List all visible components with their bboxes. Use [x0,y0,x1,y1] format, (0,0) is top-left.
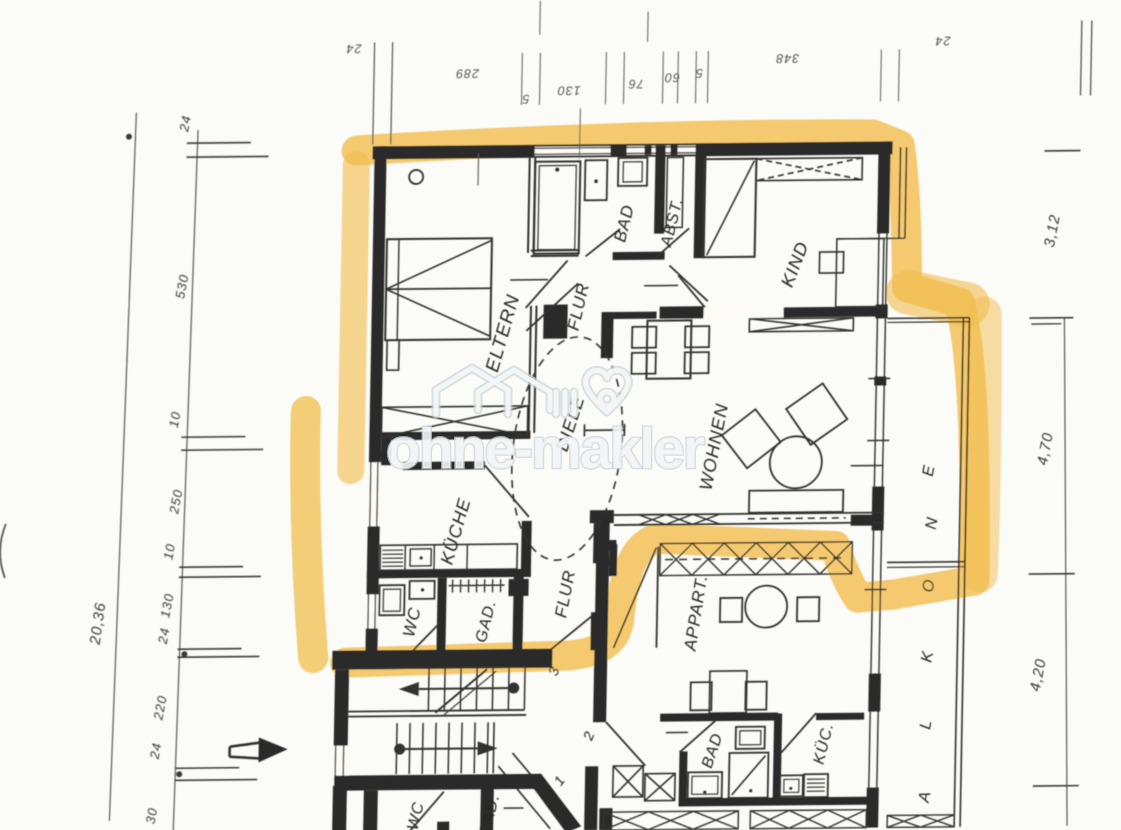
svg-text:5: 5 [695,66,703,80]
svg-text:10: 10 [160,542,178,561]
svg-text:289: 289 [455,66,480,80]
svg-text:130: 130 [557,83,581,97]
svg-text:76: 76 [628,77,644,91]
svg-text:60: 60 [664,70,680,84]
svg-text:24: 24 [345,41,362,55]
svg-text:30: 30 [143,806,161,825]
svg-text:O: O [920,578,939,594]
svg-text:10: 10 [166,410,184,429]
svg-text:24: 24 [935,34,952,48]
svg-text:348: 348 [775,51,799,65]
svg-text:5: 5 [521,92,529,106]
svg-text:ohne-makler: ohne-makler [386,417,705,481]
